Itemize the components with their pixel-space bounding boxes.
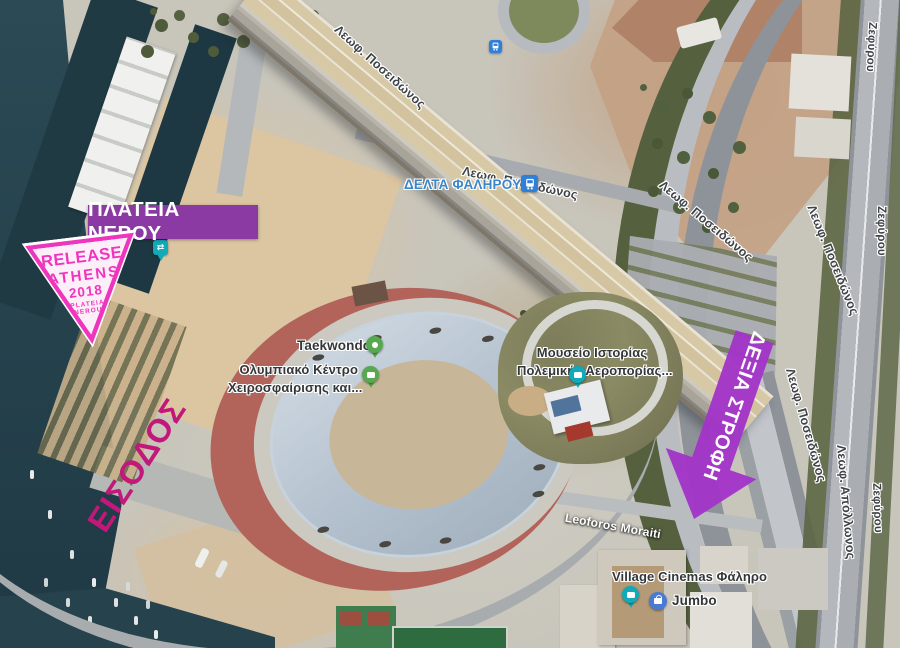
village-cinemas-pin[interactable] (622, 586, 640, 608)
bag-handle (656, 595, 662, 599)
release-athens-logo: RELEASE ATHENS 2018 PLATEIA NEROU (22, 229, 151, 354)
jumbo-pin[interactable] (649, 592, 667, 610)
tram-glyph-small (491, 42, 500, 51)
museum-pin[interactable] (569, 366, 587, 388)
stadium-glyph (367, 372, 375, 378)
poi-label-museum[interactable]: Μουσείο Ιστορίας Πολεμικής Αεροπορίας... (517, 344, 667, 380)
museum-line2: Πολεμικής Αεροπορίας... (517, 363, 673, 378)
satellite-map[interactable]: Λεωφ. Ποσειδώνος Λεωφ. Ποσειδώνος Λεωφ. … (0, 0, 900, 648)
museum-line1: Μουσείο Ιστορίας (537, 345, 647, 360)
taekwondo-pin[interactable] (366, 336, 384, 358)
poi-label-olympic-center[interactable]: Ολυμπιακό Κέντρο Χειροσφαίρισης και... (228, 361, 358, 397)
tram-glyph (524, 178, 536, 190)
court-red (340, 611, 362, 626)
basketball-courts (336, 606, 396, 648)
olympic-line2: Χειροσφαίρισης και... (228, 380, 362, 395)
roundabout (498, 0, 590, 54)
poi-label-village-cinemas[interactable]: Village Cinemas Φάληρο (612, 569, 767, 584)
building-5 (789, 53, 852, 111)
museum-glyph (574, 372, 582, 378)
building-6 (794, 117, 851, 160)
pin-dot (372, 342, 378, 348)
tree-cluster-right (640, 84, 647, 91)
cinema-glyph (627, 592, 635, 598)
tram-icon[interactable] (521, 175, 538, 192)
tree-cluster-top (150, 8, 157, 15)
poi-label-taekwondo[interactable]: Taekwondo (297, 338, 371, 353)
olympic-center-pin[interactable] (362, 366, 380, 388)
plateia-pin-tail (157, 254, 165, 261)
building-4 (758, 548, 828, 610)
poi-label-jumbo[interactable]: Jumbo (672, 593, 717, 608)
bag-glyph (654, 598, 662, 604)
olympic-line1: Ολυμπιακό Κέντρο (240, 362, 358, 377)
court-red-2 (368, 611, 390, 626)
tram-icon-small[interactable] (489, 40, 502, 53)
soccer-field (392, 626, 508, 648)
road-label-zefyrou-3: Ζεφύρου (870, 483, 884, 533)
road-label-zefyrou-2: Ζεφύρου (875, 206, 887, 256)
tram-stop-label[interactable]: ΔΕΛΤΑ ΦΑΛΗΡΟΥ (404, 177, 521, 192)
